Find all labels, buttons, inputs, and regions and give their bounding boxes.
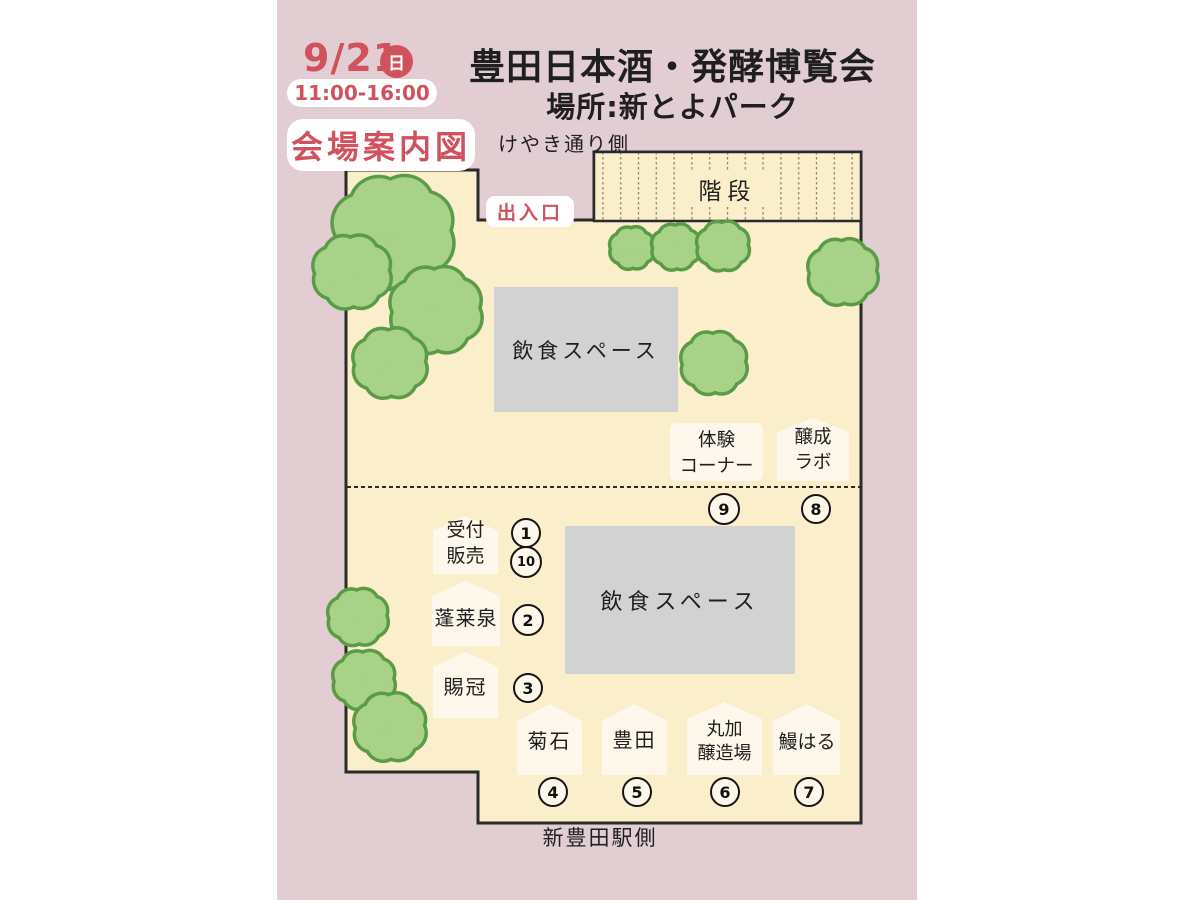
booth-number-5: 5 (622, 777, 652, 807)
event-location: 場所:新とよパーク (450, 84, 895, 126)
day-of-week-badge: 日 (380, 45, 413, 78)
stairs-label: 階段 (594, 172, 861, 206)
event-time: 11:00-16:00 (287, 79, 437, 107)
dining-space-lower-label: 飲食スペース (565, 526, 795, 674)
booth-shikan-label: 賜冠 (433, 674, 498, 700)
booth-kikuishi-label: 菊石 (515, 728, 584, 754)
booth-taiken-corner-label: 体験コーナー (670, 428, 763, 480)
entrance-label: 出入口 (486, 196, 574, 227)
station-side-label: 新豊田駅側 (480, 822, 720, 852)
booth-unagi-haru-label: 鰻はる (769, 729, 845, 755)
booth-josei-lab-label: 醸成ラボ (779, 425, 847, 475)
booth-number-3: 3 (513, 673, 543, 703)
event-title: 豊田日本酒・発酵博覧会 (450, 38, 895, 90)
booth-maruka-jozojo-label: 丸加醸造場 (684, 718, 765, 766)
street-side-label: けやき通り側 (498, 128, 630, 157)
booth-number-7: 7 (794, 777, 824, 807)
map-title-label: 会場案内図 (287, 119, 475, 171)
booth-number-9: 9 (708, 493, 740, 525)
booth-reception-sales-label: 受付販売 (433, 517, 498, 569)
booth-toyota-label: 豊田 (600, 727, 669, 753)
booth-number-2: 2 (512, 604, 544, 636)
booth-horaisen-label: 蓬莱泉 (424, 605, 508, 631)
event-map-poster: 9/21 日 11:00-16:00 会場案内図 豊田日本酒・発酵博覧会 場所:… (0, 0, 1200, 900)
booth-number-1: 1 (511, 518, 541, 548)
booth-number-10: 10 (510, 546, 542, 578)
booth-number-4: 4 (538, 777, 568, 807)
booth-number-6: 6 (710, 777, 740, 807)
dining-space-upper-label: 飲食スペース (494, 287, 678, 412)
booth-number-8: 8 (801, 494, 831, 524)
